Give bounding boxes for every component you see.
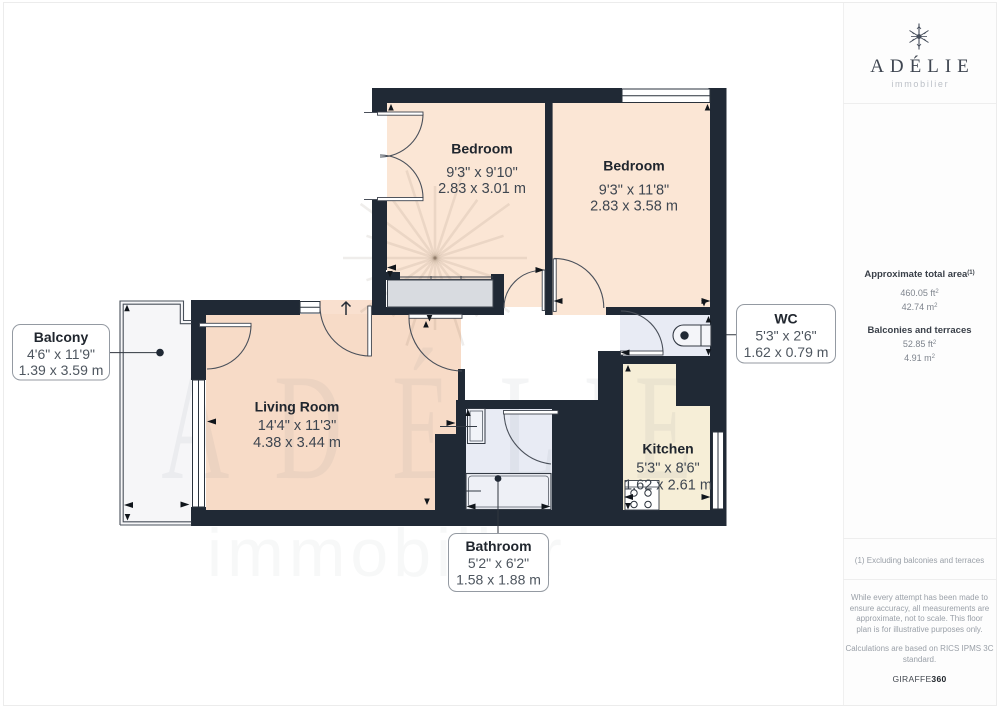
svg-text:9'3" x 11'8": 9'3" x 11'8" bbox=[599, 183, 669, 199]
svg-text:14'4" x 11'3": 14'4" x 11'3" bbox=[258, 418, 336, 434]
svg-text:Bedroom: Bedroom bbox=[603, 158, 664, 174]
svg-text:1.62 x 2.61 m: 1.62 x 2.61 m bbox=[624, 478, 712, 494]
svg-text:5'3" x 2'6": 5'3" x 2'6" bbox=[755, 328, 816, 344]
svg-text:1.58 x 1.88 m: 1.58 x 1.88 m bbox=[456, 572, 541, 588]
svg-text:Kitchen: Kitchen bbox=[642, 441, 693, 457]
svg-text:9'3" x 9'10": 9'3" x 9'10" bbox=[446, 165, 517, 181]
svg-text:5'2" x 6'2": 5'2" x 6'2" bbox=[468, 555, 529, 571]
svg-text:2.83 x 3.01 m: 2.83 x 3.01 m bbox=[438, 181, 526, 197]
svg-text:1.39 x 3.59 m: 1.39 x 3.59 m bbox=[19, 362, 104, 378]
svg-text:5'3" x 8'6": 5'3" x 8'6" bbox=[636, 461, 699, 477]
svg-text:4'6" x 11'9": 4'6" x 11'9" bbox=[27, 346, 95, 362]
svg-text:Living Room: Living Room bbox=[255, 399, 340, 415]
svg-text:4.38 x 3.44 m: 4.38 x 3.44 m bbox=[253, 435, 341, 451]
svg-text:Bedroom: Bedroom bbox=[451, 141, 512, 157]
svg-text:Bathroom: Bathroom bbox=[465, 538, 531, 554]
svg-text:Balcony: Balcony bbox=[34, 329, 89, 345]
svg-text:WC: WC bbox=[774, 311, 797, 327]
svg-text:2.83 x 3.58 m: 2.83 x 3.58 m bbox=[590, 199, 678, 215]
svg-text:1.62 x 0.79 m: 1.62 x 0.79 m bbox=[744, 344, 829, 360]
